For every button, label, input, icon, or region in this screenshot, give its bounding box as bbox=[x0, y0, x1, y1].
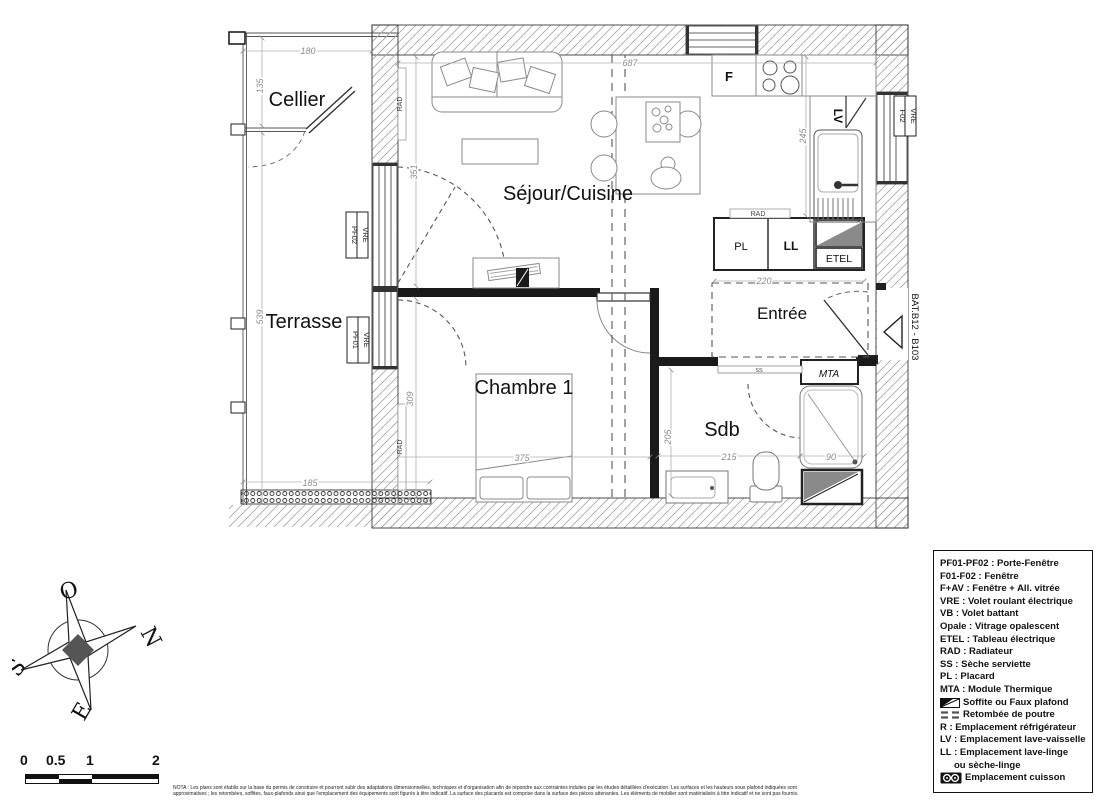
tag-ll: LL bbox=[784, 239, 799, 253]
dim-309: 309 bbox=[405, 391, 415, 406]
compass-south: S bbox=[12, 655, 32, 682]
sejour-furniture bbox=[398, 52, 701, 288]
chair bbox=[591, 111, 617, 137]
nota-line-2: approximatives ; les retombées, soffites… bbox=[173, 791, 923, 797]
dim-687: 687 bbox=[622, 58, 638, 68]
legend-item: LV : Emplacement lave-vaisselle bbox=[940, 734, 1092, 747]
tag-bat-unit: BAT.B12 - B103 bbox=[909, 294, 920, 361]
scale-tick-2: 2 bbox=[152, 752, 160, 768]
dim-135: 135 bbox=[255, 78, 265, 94]
sink bbox=[814, 130, 862, 222]
compass-rose: O N S E bbox=[12, 580, 172, 740]
toilet bbox=[750, 452, 782, 502]
scale-tick-0-5: 0.5 bbox=[46, 752, 65, 768]
room-label-entree: Entrée bbox=[757, 304, 807, 323]
cooktop bbox=[763, 61, 799, 94]
pillow bbox=[527, 477, 570, 499]
sofa-pillow bbox=[497, 58, 526, 82]
dim-539: 539 bbox=[255, 309, 265, 324]
legend-box: PF01-PF02 : Porte-Fenêtre F01-F02 : Fenê… bbox=[933, 550, 1093, 793]
soffit-icon bbox=[940, 698, 960, 708]
bathroom bbox=[666, 386, 862, 504]
entrance-door-leaf bbox=[824, 300, 868, 355]
legend-item: PL : Placard bbox=[940, 671, 1092, 684]
dim-180: 180 bbox=[300, 46, 315, 56]
soffit-box bbox=[802, 470, 862, 504]
floor-plan-drawing: 180 135 539 185 687 351 245 220 309 375 … bbox=[0, 0, 1096, 545]
dishwasher bbox=[846, 96, 866, 128]
person-body bbox=[651, 167, 681, 189]
legend-item: ETEL : Tableau électrique bbox=[940, 634, 1092, 647]
label-box-f02: F02 VRE bbox=[894, 96, 918, 136]
tag-rad-closet: RAD bbox=[751, 211, 766, 218]
svg-text:VRE: VRE bbox=[361, 227, 370, 242]
kitchen bbox=[712, 55, 876, 222]
svg-text:PF01: PF01 bbox=[351, 331, 360, 349]
chair bbox=[591, 155, 617, 181]
room-label-terrasse: Terrasse bbox=[266, 311, 343, 333]
legend-item: VB : Volet battant bbox=[940, 608, 1092, 621]
label-box-pf02: PF02 VRE bbox=[346, 212, 370, 258]
counter bbox=[712, 55, 876, 96]
window-pf01 bbox=[373, 289, 397, 369]
room-label-cellier: Cellier bbox=[269, 89, 326, 111]
legend-item: Retombée de poutre bbox=[940, 709, 1092, 722]
tag-rad-chambre: RAD bbox=[397, 440, 404, 455]
room-label-sejour: Séjour/Cuisine bbox=[503, 183, 633, 205]
legend-item: F01-F02 : Fenêtre bbox=[940, 571, 1092, 584]
beam-icon bbox=[940, 710, 960, 720]
cooktop-icon bbox=[940, 772, 962, 784]
dim-375: 375 bbox=[514, 453, 530, 463]
dim-185: 185 bbox=[302, 478, 318, 488]
legend-item: Opale : Vitrage opalescent bbox=[940, 621, 1092, 634]
legend-item: ou sèche-linge bbox=[940, 760, 1092, 773]
scale-bar: 0 0.5 1 2 bbox=[14, 752, 184, 792]
dim-245: 245 bbox=[798, 128, 808, 145]
label-box-pf01: PF01 VRE bbox=[347, 317, 371, 363]
legend-item: Emplacement cuisson bbox=[940, 772, 1092, 785]
compass-west: O bbox=[57, 580, 81, 606]
legend-item: RAD : Radiateur bbox=[940, 646, 1092, 659]
legend-item: VRE : Volet roulant électrique bbox=[940, 596, 1092, 609]
window-pf02 bbox=[373, 163, 397, 289]
dim-351: 351 bbox=[409, 164, 419, 179]
scale-tick-1: 1 bbox=[86, 752, 94, 768]
svg-text:VRE: VRE bbox=[362, 332, 371, 347]
tag-ss: SS bbox=[755, 368, 763, 374]
svg-text:F02: F02 bbox=[898, 110, 907, 123]
window-f01 bbox=[686, 26, 758, 54]
svg-text:VRE: VRE bbox=[909, 108, 918, 123]
legend-item: SS : Sèche serviette bbox=[940, 659, 1092, 672]
compass-center bbox=[62, 634, 94, 666]
legend-item: R : Emplacement réfrigérateur bbox=[940, 722, 1092, 735]
tag-window-f: F bbox=[725, 69, 733, 84]
legend-item: PF01-PF02 : Porte-Fenêtre bbox=[940, 558, 1092, 571]
dim-215: 215 bbox=[720, 452, 737, 462]
tag-etel: ETEL bbox=[826, 253, 852, 265]
nota-disclaimer: NOTA : Les plans sont établis sur la bas… bbox=[173, 785, 923, 799]
floorplan-page: 180 135 539 185 687 351 245 220 309 375 … bbox=[0, 0, 1096, 800]
tag-rad-sejour: RAD bbox=[397, 97, 404, 112]
svg-text:PF02: PF02 bbox=[350, 226, 359, 244]
legend-item: MTA : Module Thermique bbox=[940, 684, 1092, 697]
tag-lv: LV bbox=[831, 109, 845, 123]
chambre-door bbox=[597, 293, 650, 353]
scale-bar-rule bbox=[25, 774, 159, 784]
room-label-chambre: Chambre 1 bbox=[475, 377, 574, 399]
legend-item: F+AV : Fenêtre + All. vitrée bbox=[940, 583, 1092, 596]
room-label-sdb: Sdb bbox=[704, 419, 740, 441]
dim-90: 90 bbox=[826, 452, 836, 462]
compass-north: N bbox=[135, 623, 166, 652]
tag-mta: MTA bbox=[819, 369, 840, 380]
tag-pl: PL bbox=[734, 241, 747, 253]
coffee-table bbox=[462, 139, 538, 164]
vanity bbox=[666, 471, 728, 503]
scale-tick-0: 0 bbox=[20, 752, 28, 768]
compass-east: E bbox=[68, 699, 98, 725]
pillow bbox=[480, 477, 523, 499]
legend-item: Soffite ou Faux plafond bbox=[940, 697, 1092, 710]
dim-220: 220 bbox=[755, 276, 771, 286]
legend-item: LL : Emplacement lave-linge bbox=[940, 747, 1092, 760]
dim-205: 205 bbox=[663, 429, 673, 446]
entrance-opening bbox=[824, 283, 908, 364]
